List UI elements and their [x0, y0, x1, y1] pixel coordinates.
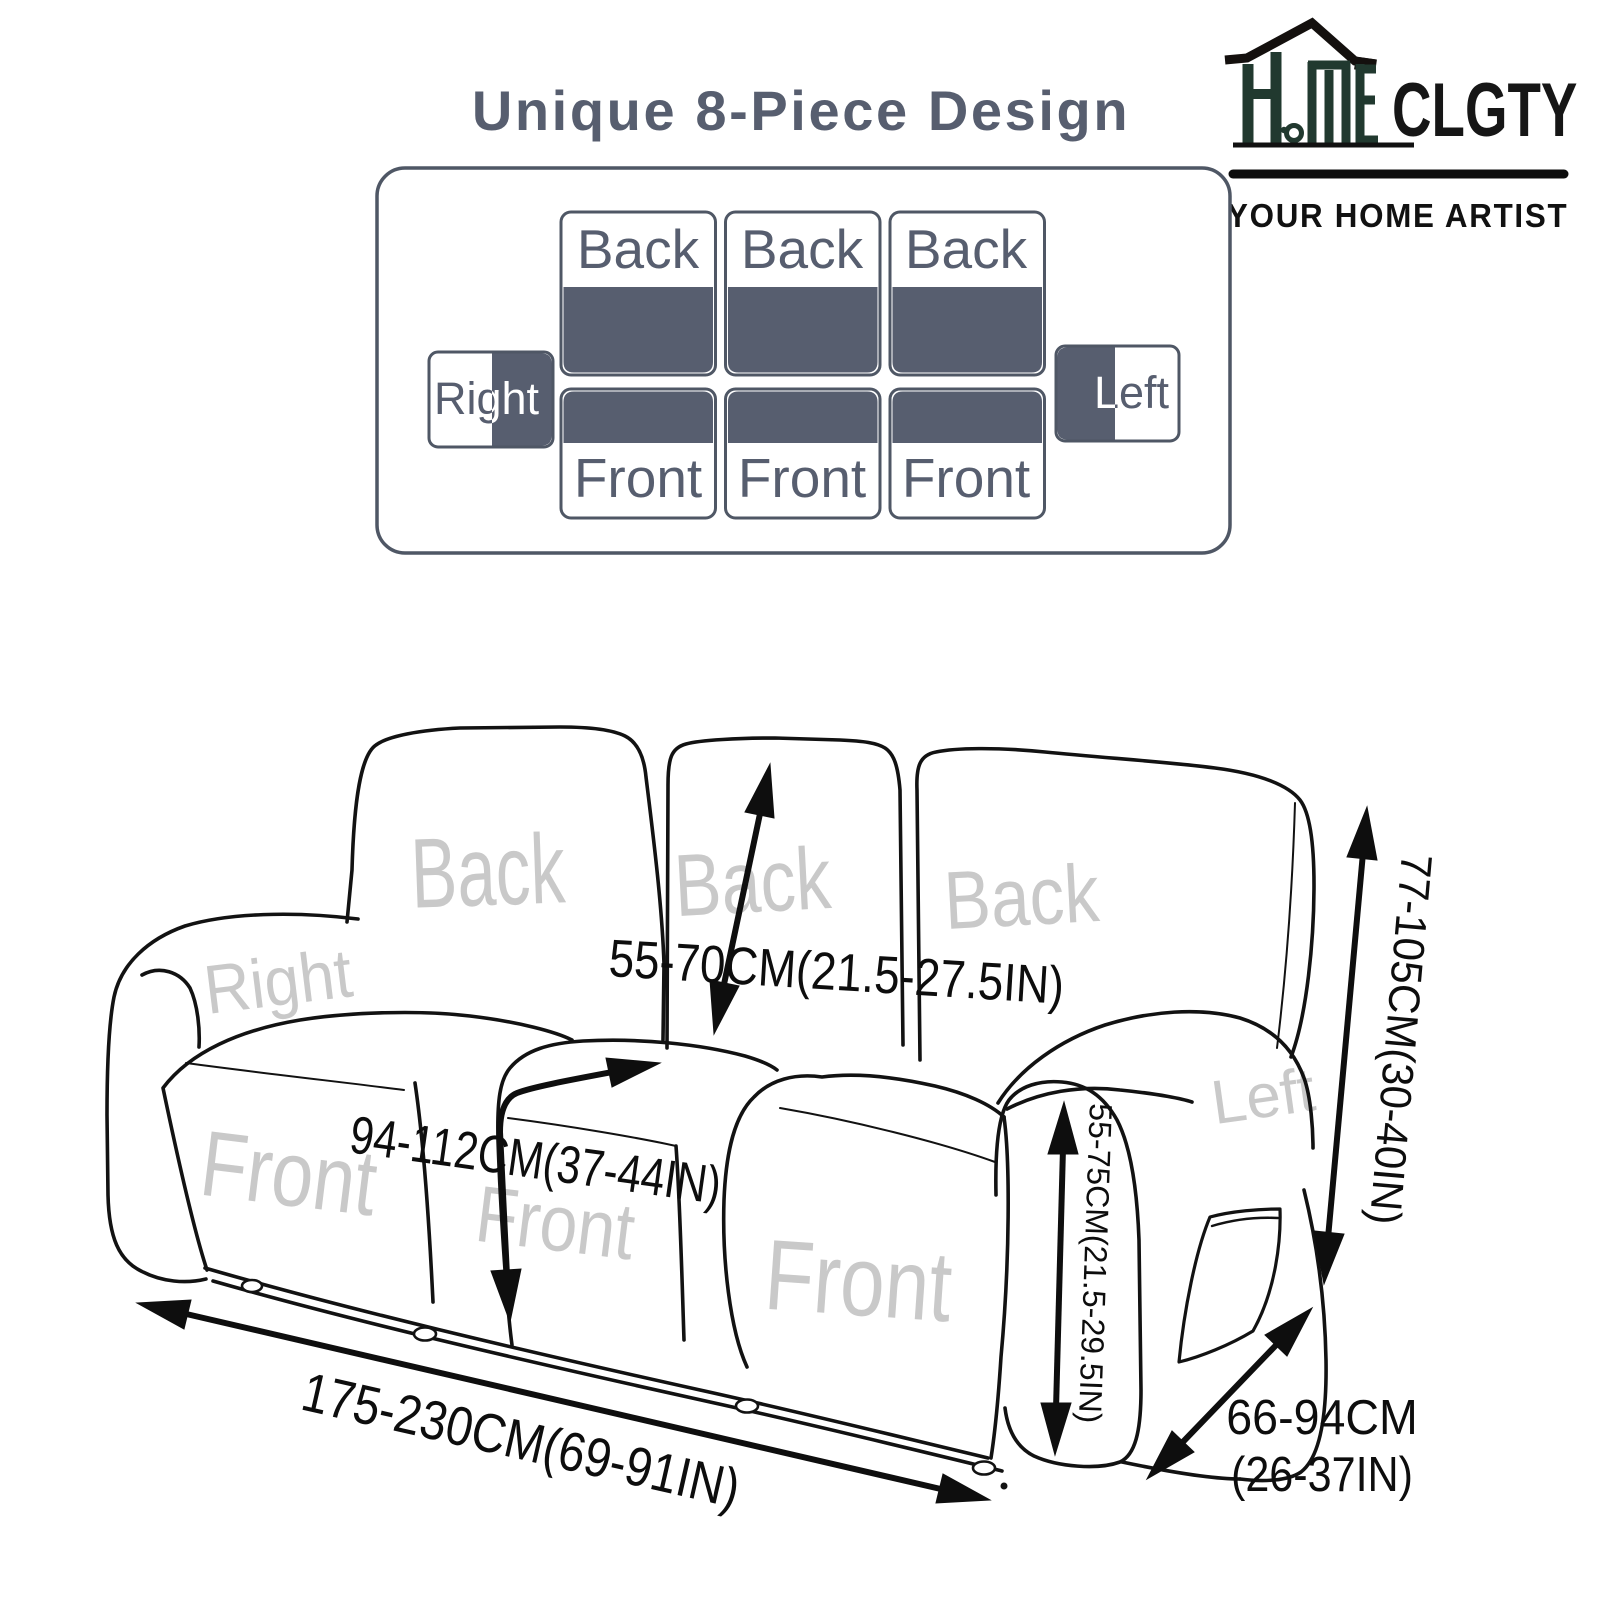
svg-text:YOUR HOME ARTIST: YOUR HOME ARTIST — [1227, 197, 1568, 234]
svg-text:Unique 8-Piece Design: Unique 8-Piece Design — [472, 79, 1130, 142]
svg-text:Back: Back — [905, 218, 1028, 280]
svg-text:Front: Front — [902, 447, 1030, 509]
svg-text:Back: Back — [577, 218, 700, 280]
svg-text:Back: Back — [942, 848, 1102, 948]
svg-text:66-94CM: 66-94CM — [1226, 1391, 1417, 1445]
svg-text:Back: Back — [409, 814, 567, 929]
svg-text:Back: Back — [741, 218, 864, 280]
svg-text:(26-37IN): (26-37IN) — [1231, 1446, 1413, 1501]
svg-text:Front: Front — [761, 1219, 955, 1343]
svg-text:Front: Front — [574, 447, 702, 509]
svg-text:Left: Left — [1207, 1055, 1319, 1138]
svg-text:Front: Front — [738, 447, 866, 509]
svg-text:CLGTY: CLGTY — [1392, 68, 1577, 153]
